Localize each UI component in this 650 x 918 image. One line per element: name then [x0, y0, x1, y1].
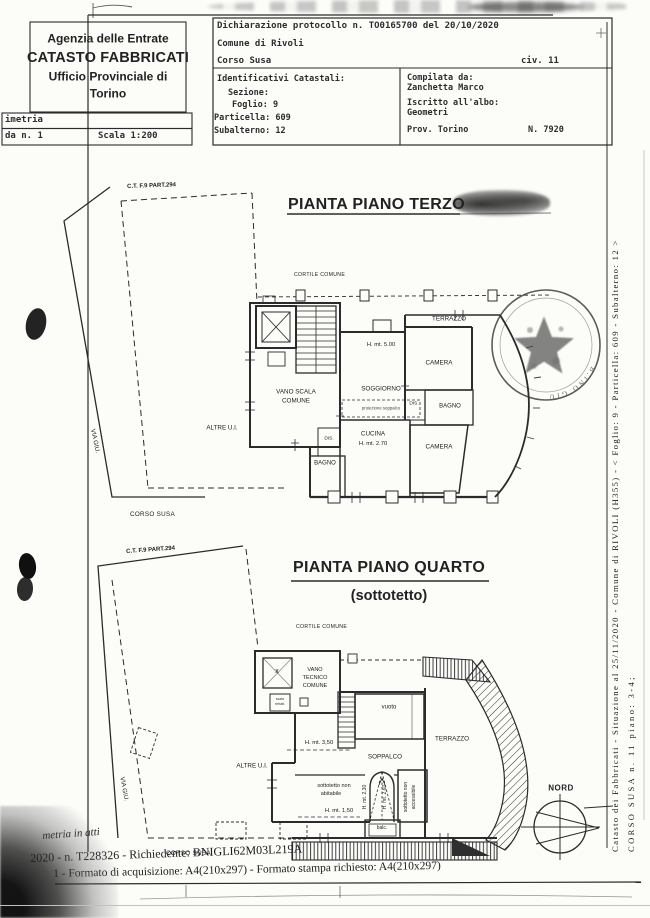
terrace-label-4: TERRAZZO: [435, 735, 469, 742]
floor4-subtitle: (sottotetto): [351, 588, 428, 604]
agency-provincial-office: Ufficio Provinciale di: [49, 70, 168, 83]
province-field: Prov. Torino: [407, 126, 468, 136]
shaft-x-mark: x: [275, 668, 279, 676]
hallway1-label: DIS.: [409, 401, 418, 406]
planimetria-row-label: imetria: [5, 115, 43, 125]
comune-line: Comune di Rivoli: [217, 39, 304, 49]
plan-quarto-building: [255, 581, 528, 860]
stamp-star: [516, 318, 573, 372]
stamp-text-fragment: B.INO GIU: [547, 365, 597, 401]
subalterno-field: Subalterno: 12: [214, 127, 286, 137]
courtyard-label-3: CORTILE COMUNE: [294, 273, 345, 279]
north-compass: [521, 794, 600, 860]
technical-room-label-2: TECNICO: [303, 675, 328, 681]
height-150-label: H. mt. 1,50: [325, 808, 353, 814]
attic-nonaccessible-label-1: sottotetto non: [404, 782, 410, 812]
plan-terzo-parcel: [64, 187, 552, 497]
terrace-label-3: TERRAZZO: [432, 315, 466, 322]
stairwell-label-1: VANO SCALA: [276, 388, 316, 395]
floor3-title: PIANTA PIANO TERZO: [288, 196, 465, 214]
page-edge-shadow: [0, 905, 650, 906]
plan-terzo-building: [245, 213, 551, 503]
loft-label: SOPPALCO: [368, 753, 402, 760]
scale-label: Scala 1:200: [98, 131, 158, 141]
register-number: N. 7920: [528, 126, 564, 136]
scan-smear-top-dark: [468, 2, 583, 12]
street-corso-label-3: CORSO SUSA: [130, 511, 175, 518]
north-label: NORD: [548, 785, 574, 794]
sezione-field: Sezione:: [228, 89, 269, 99]
technical-room-label-3: COMUNE: [303, 683, 327, 689]
retractable-stair-label-2: retratt.: [275, 703, 285, 707]
svg-text:B.INO GIU: B.INO GIU: [547, 365, 597, 401]
kitchen-height-label: H. mt. 2.70: [359, 441, 387, 447]
footer-rules: [55, 882, 641, 899]
agency-name: Agenzia delle Entrate: [47, 32, 168, 45]
cadastral-ids-title: Identificativi Catastali:: [217, 75, 345, 85]
margin-cadastral-reference: Catasto dei Fabbricati - Situazione al 2…: [611, 239, 621, 852]
attic-nonhabitable-label-2: abitabile: [321, 791, 342, 797]
margin-address-reference: CORSO SUSA n. 11 piano: 3-4;: [627, 675, 637, 852]
bedroom2-label: CAMERA: [426, 443, 453, 450]
void-room: [355, 694, 424, 739]
balcony-label: balc.: [377, 826, 388, 832]
scan-smudge-corner: [0, 806, 118, 918]
address-line: Corso Susa: [217, 56, 271, 66]
living-room-label: SOGGIORNO: [361, 385, 401, 392]
agency-office: CATASTO FABBRICATI: [27, 50, 189, 66]
void-label: vuoto: [382, 705, 397, 712]
register-value: Geometri: [407, 109, 448, 119]
common-technical-block: [255, 651, 340, 713]
bathroom1-label: BAGNO: [439, 404, 461, 411]
attic-nonaccessible-label-2: accessibile: [412, 785, 418, 809]
height-230-label: H. mt. 2,30: [363, 785, 369, 809]
stairs: [296, 306, 336, 373]
height-5m-label: H. mt. 5.00: [367, 342, 395, 348]
height-350-label: H. mt. 3,50: [305, 740, 333, 746]
floor4-title: PIANTA PIANO QUARTO: [293, 559, 485, 577]
loft-projection-label: proiezione soppalco: [362, 407, 400, 412]
bedroom1-label: CAMERA: [426, 359, 453, 366]
scan-smudge-after-title: [453, 190, 550, 216]
wall-openings: [245, 310, 463, 503]
other-units-label-3: ALTRE U.I.: [206, 424, 237, 431]
hallway2-label: DIS.: [324, 436, 333, 441]
courtyard-label-4: CORTILE COMUNE: [296, 625, 347, 631]
particella-field: Particella: 609: [214, 114, 291, 124]
other-units-label-4: ALTRE U.I.: [236, 762, 267, 769]
attic-nonhabitable-label-1: sottotetto non: [317, 783, 350, 789]
technical-room-label-1: VANO: [307, 667, 322, 673]
scanned-cadastral-document: B.INO GIU: [0, 0, 650, 918]
roof-hatch-curved: [466, 660, 528, 850]
notary-stamp: B.INO GIU: [492, 290, 600, 401]
compiler-name: Zanchetta Marco: [407, 84, 484, 94]
bathroom2-label: BAGNO: [314, 461, 336, 468]
height-260-label: H. mt. 2,60: [383, 785, 389, 809]
civic-number: civ. 11: [521, 56, 559, 66]
kitchen-label: CUCINA: [361, 430, 385, 437]
protocol-line: Dichiarazione protocollo n. TO0165700 de…: [217, 21, 499, 31]
foglio-field: Foglio: 9: [232, 101, 278, 111]
stairwell-label-2: COMUNE: [282, 397, 310, 404]
agency-city: Torino: [90, 87, 126, 100]
wall-openings: [267, 780, 448, 843]
scheda-row-label: da n. 1: [5, 131, 43, 141]
